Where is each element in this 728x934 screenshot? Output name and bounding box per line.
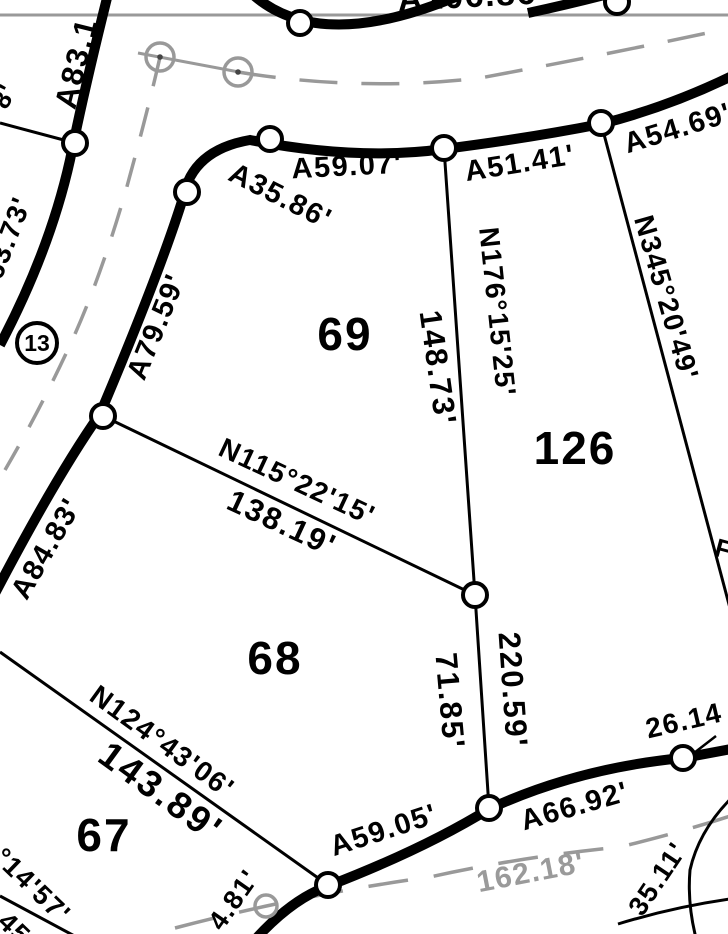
corner-marker	[258, 127, 282, 151]
corner-marker	[91, 404, 115, 428]
corner-marker	[175, 180, 199, 204]
gray-monument-circle-1	[146, 43, 174, 71]
lot-number-126: 126	[534, 425, 617, 471]
centerline-top-dashed	[238, 27, 728, 84]
lot-arc-bottom-right	[689, 788, 728, 934]
distance-label-220-59: 220.59'	[493, 631, 532, 749]
lot-line-n115	[103, 416, 475, 595]
corner-marker	[589, 111, 613, 135]
lot-number-67: 67	[76, 812, 131, 858]
corner-marker	[432, 136, 456, 160]
corner-marker	[671, 746, 695, 770]
lot-number-68: 68	[247, 635, 302, 681]
corner-marker	[463, 583, 487, 607]
lot-number-69: 69	[317, 311, 372, 357]
lot-line-n345	[601, 123, 728, 612]
distance-label-71-85: 71.85'	[430, 651, 469, 750]
corner-marker	[63, 131, 87, 155]
arc-label-a59-07: A59.07'	[291, 150, 403, 185]
plat-map: 69 126 68 67 13 A106.86' A83.1 A79.59' A…	[0, 0, 728, 934]
corner-marker	[477, 796, 501, 820]
corner-marker	[605, 0, 629, 14]
corner-marker	[316, 873, 340, 897]
corner-marker	[288, 11, 312, 35]
monument-13: 13	[15, 321, 59, 365]
